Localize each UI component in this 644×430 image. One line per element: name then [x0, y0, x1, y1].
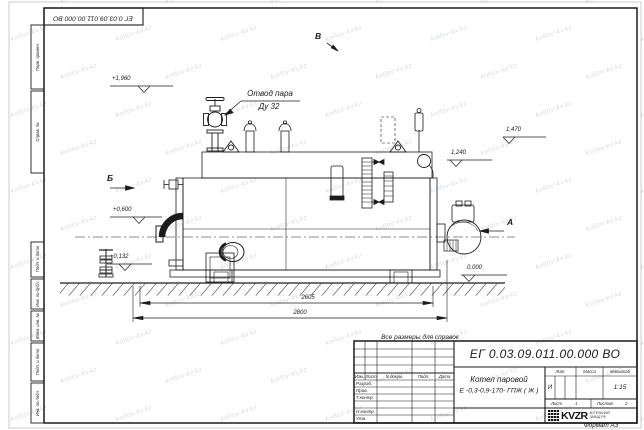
title-block-doc-number: ЕГ 0.03.09.011.00.000 ВО	[470, 348, 620, 360]
steam-outlet-size: Ду 32	[259, 103, 280, 111]
margin-label-podp-data-1: Подп. и дата	[35, 246, 39, 272]
inlet-elbow	[162, 216, 183, 237]
steam-valve	[204, 98, 227, 153]
margin-label-sprav-no: Справ. №	[35, 122, 39, 141]
level-probe	[330, 166, 344, 200]
margin-label-perv-primen: Перв. примен.	[35, 43, 39, 71]
burner	[437, 201, 481, 254]
reference-note: Все размеры для справок	[381, 335, 459, 342]
lifting-lugs	[223, 141, 406, 152]
drawing-sheet: kotlov-kv.kzkotlov-kv.kzkotlov-kv.kzkotl…	[0, 0, 644, 430]
kvzr-logo-caption: КОТЕЛЬНЫЙ ЗАВОД РФ	[590, 412, 610, 419]
boiler-side-view	[60, 43, 546, 322]
level-mark-0132: +0,132	[110, 254, 129, 260]
steam-outlet-label: Отвод пара	[247, 90, 293, 98]
margin-label-podp-data-2: Подп. и дата	[35, 349, 39, 375]
lit-header: Лит.	[555, 369, 565, 373]
signature-row-tkontr: Т.контр.	[356, 396, 374, 401]
rear-plate	[430, 178, 437, 270]
change-header-data: Дата	[439, 374, 450, 378]
view-label-v: В	[315, 32, 321, 41]
sheet-number: 1	[575, 402, 577, 406]
signature-row-utv: Утв.	[356, 417, 366, 422]
water-gauge	[362, 158, 393, 208]
lit-value: И	[548, 385, 552, 391]
change-header-izm: Изм.	[355, 374, 364, 378]
sheets-label: Листов	[597, 402, 613, 406]
phantom-outline	[381, 117, 395, 143]
product-name-line1: Котел паровой	[470, 376, 527, 384]
ground-hatch	[60, 284, 505, 296]
change-header-list: Лист	[365, 374, 376, 378]
top-casing	[202, 152, 432, 178]
scale-header: Масштаб	[610, 369, 630, 373]
product-name-line2: Е -0,3-0,9-170- ГПЖ ( Ж )	[460, 389, 539, 396]
level-mark-0000: 0,000	[467, 265, 482, 271]
sheet-label: Лист	[551, 402, 562, 406]
format-label: Формат А3	[584, 423, 618, 429]
top-stamp-doc-number: ЕГ 0.03.09.011.00.000 ВО	[53, 13, 133, 20]
mass-header: Масса	[583, 369, 596, 373]
drawing-geometry	[0, 0, 644, 430]
level-mark-symbols	[107, 86, 546, 282]
manhole	[220, 243, 244, 262]
change-header-podp: Подп.	[418, 374, 429, 378]
company-logo: KVZR КОТЕЛЬНЫЙ ЗАВОД РФ	[548, 409, 634, 422]
vent-nozzles	[244, 121, 291, 152]
level-mark-1470: 1,470	[506, 127, 521, 133]
margin-label-vzam-inv: Взам. инв. №	[35, 313, 39, 339]
level-mark-0600: +0,600	[113, 207, 132, 213]
change-header-dokum: N докум.	[386, 374, 403, 378]
signature-row-prov: Пров.	[356, 389, 368, 394]
level-mark-1240: 1,240	[451, 150, 466, 156]
logo-caption-line2: ЗАВОД РФ	[590, 415, 606, 419]
view-label-a: А	[507, 218, 513, 227]
sheets-total: 2	[625, 402, 627, 406]
view-arrows	[110, 43, 504, 233]
dimension-2800: 2800	[293, 310, 306, 316]
paper-edge	[9, 2, 641, 428]
pressure-gauge	[415, 109, 433, 179]
signature-row-razrab: Разраб.	[356, 382, 372, 387]
signature-row-nkontr: Н.контр.	[356, 410, 375, 415]
front-fittings	[99, 180, 183, 277]
view-label-b: Б	[107, 174, 113, 183]
dimension-2605: 2605	[301, 295, 314, 301]
margin-label-inv-dubl: Инв. № дубл.	[35, 281, 39, 307]
kvzr-logo-icon	[548, 410, 559, 421]
level-mark-1960: +1,960	[112, 76, 131, 82]
kvzr-logo-text: KVZR	[561, 410, 588, 422]
scale-value: 1:15	[614, 385, 627, 392]
margin-label-inv-podl: Инв. № подл.	[35, 390, 39, 416]
